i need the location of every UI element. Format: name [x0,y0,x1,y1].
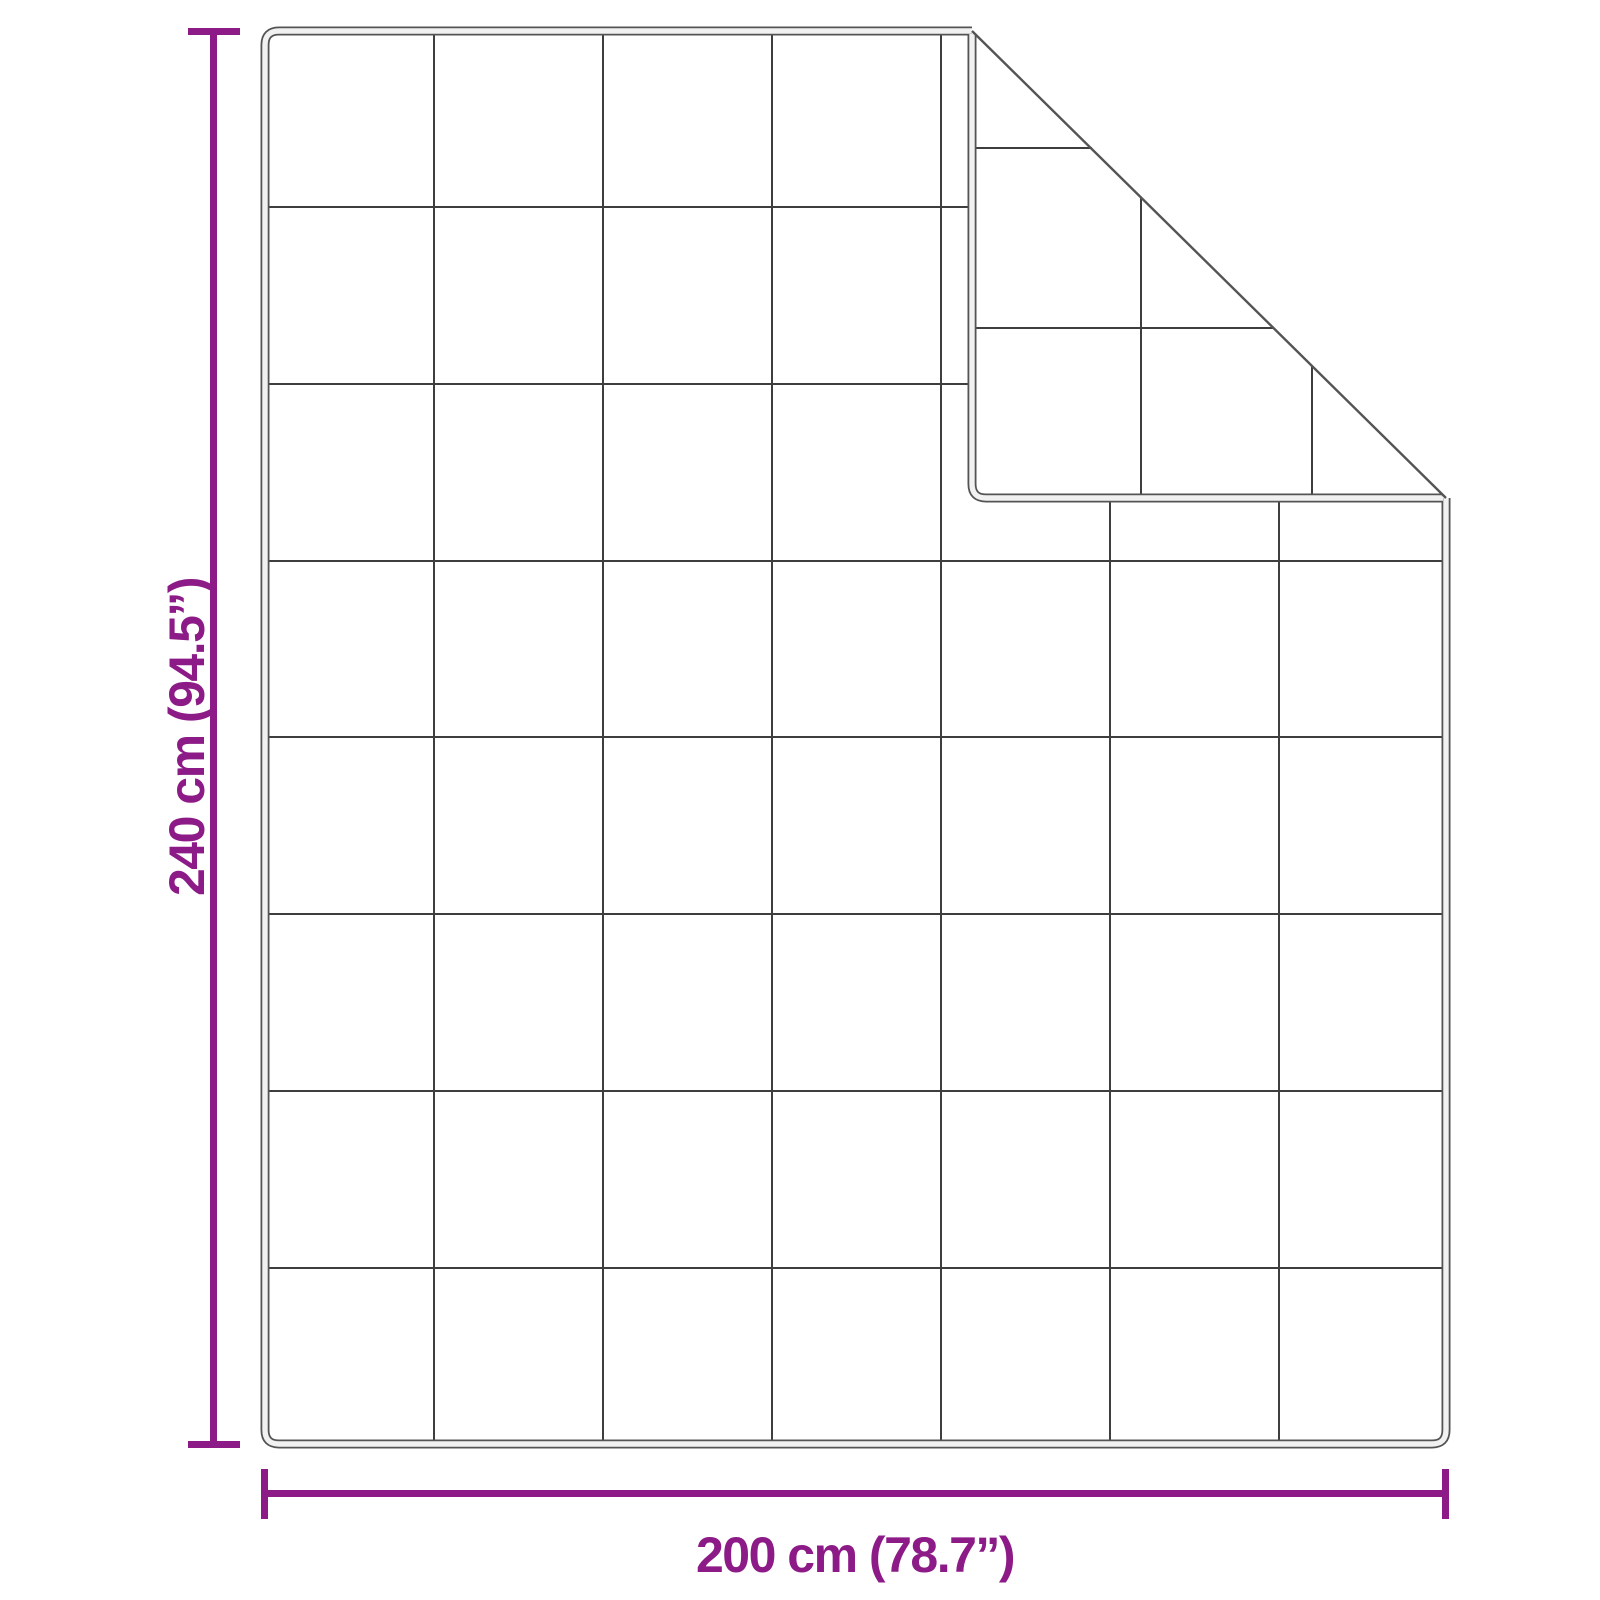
folded-corner-flap [972,31,1446,498]
width-dimension-left-cap [261,1469,268,1519]
width-label: 200 cm (78.7”) [696,1527,1014,1583]
height-label: 240 cm (94.5”) [159,578,215,896]
blanket-diagram-svg: 240 cm (94.5”) 200 cm (78.7”) [0,0,1600,1600]
width-dimension-line [264,1490,1446,1497]
dimension-diagram: 240 cm (94.5”) 200 cm (78.7”) [0,0,1600,1600]
height-dimension-top-cap [188,28,240,35]
height-dimension: 240 cm (94.5”) [159,28,240,1448]
width-dimension-right-cap [1442,1469,1449,1519]
height-dimension-bottom-cap [188,1441,240,1448]
width-dimension: 200 cm (78.7”) [261,1469,1449,1583]
